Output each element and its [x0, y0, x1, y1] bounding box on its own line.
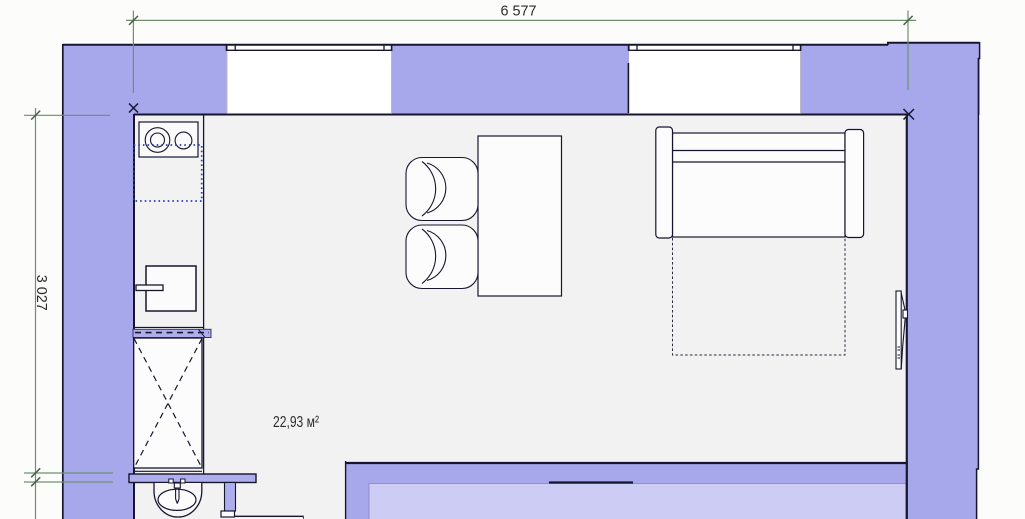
svg-text:3 027: 3 027 — [33, 275, 50, 311]
svg-text:22,93 м²: 22,93 м² — [273, 414, 320, 431]
svg-text:6 577: 6 577 — [501, 3, 537, 20]
